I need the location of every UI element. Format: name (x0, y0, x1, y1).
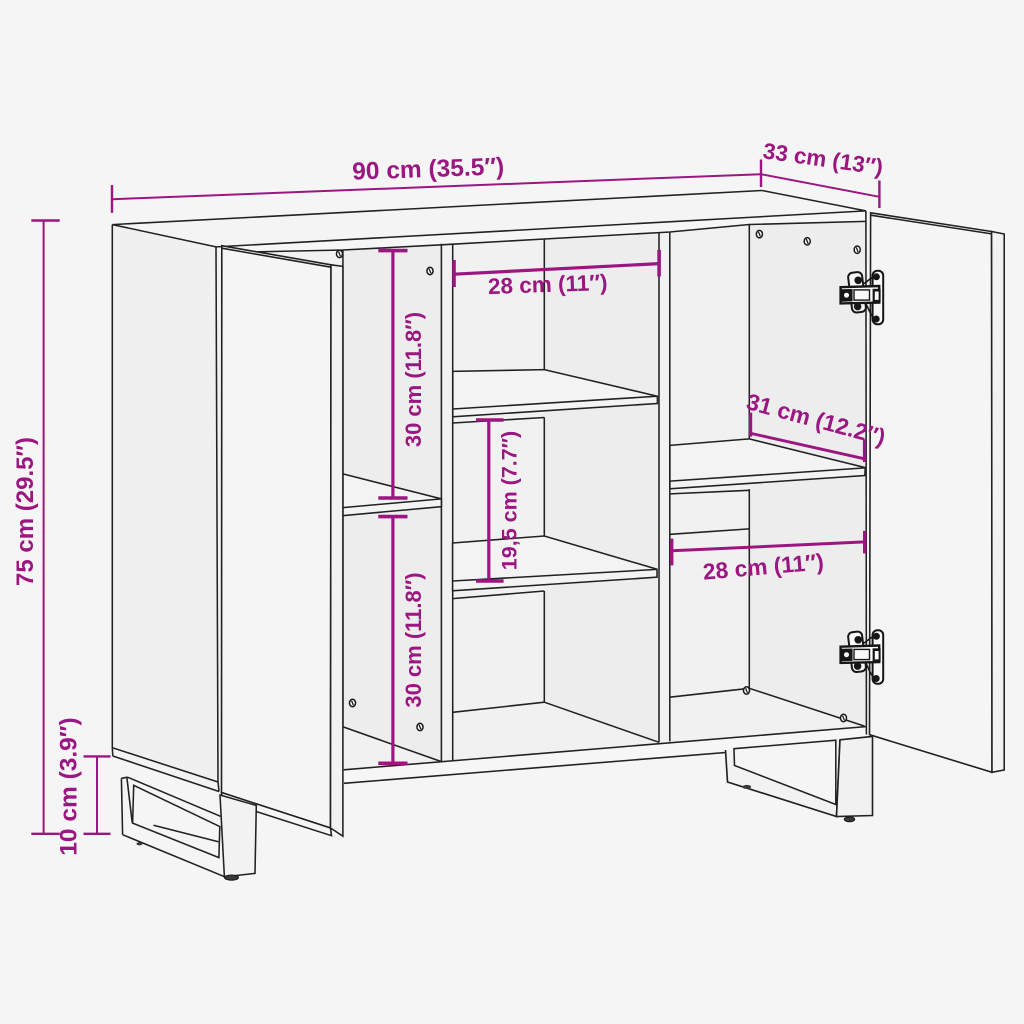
svg-text:28 cm (11″): 28 cm (11″) (488, 270, 608, 299)
svg-text:90 cm (35.5″): 90 cm (35.5″) (352, 153, 505, 185)
svg-text:75 cm (29.5″): 75 cm (29.5″) (12, 437, 39, 586)
svg-text:30 cm (11.8″): 30 cm (11.8″) (401, 312, 426, 447)
svg-text:10 cm (3.9″): 10 cm (3.9″) (56, 717, 83, 855)
svg-text:19,5 cm (7.7″): 19,5 cm (7.7″) (498, 431, 522, 570)
svg-text:30 cm (11.8″): 30 cm (11.8″) (401, 572, 426, 707)
